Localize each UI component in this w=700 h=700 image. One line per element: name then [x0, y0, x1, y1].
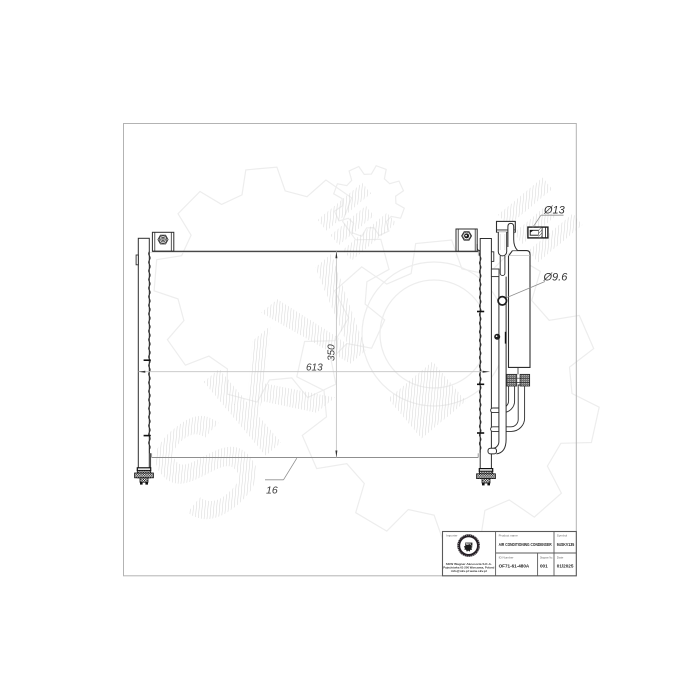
svg-text:16: 16 — [266, 485, 278, 497]
svg-text:info@skv.pl www.skv.pl: info@skv.pl www.skv.pl — [451, 569, 487, 573]
svg-text:Symbol: Symbol — [557, 534, 568, 538]
svg-text:613: 613 — [306, 363, 323, 374]
svg-text:94SKV135: 94SKV135 — [557, 542, 575, 547]
svg-text:Ø9.6: Ø9.6 — [543, 272, 569, 284]
svg-text:001: 001 — [540, 564, 548, 569]
svg-text:OF71-61-480A: OF71-61-480A — [499, 564, 530, 569]
svg-text:Importer: Importer — [446, 534, 458, 538]
svg-text:Ø13: Ø13 — [543, 205, 566, 217]
svg-text:Product name: Product name — [499, 534, 519, 538]
svg-text:350: 350 — [327, 344, 338, 361]
svg-text:ID Number: ID Number — [499, 555, 514, 559]
svg-text:01/2025: 01/2025 — [557, 564, 574, 569]
svg-text:Date: Date — [557, 555, 564, 559]
svg-text:SKV: SKV — [466, 542, 472, 546]
svg-text:AIR CONDITIONING CONDENSER: AIR CONDITIONING CONDENSER — [499, 542, 552, 547]
svg-text:Diagram No.: Diagram No. — [540, 555, 553, 559]
